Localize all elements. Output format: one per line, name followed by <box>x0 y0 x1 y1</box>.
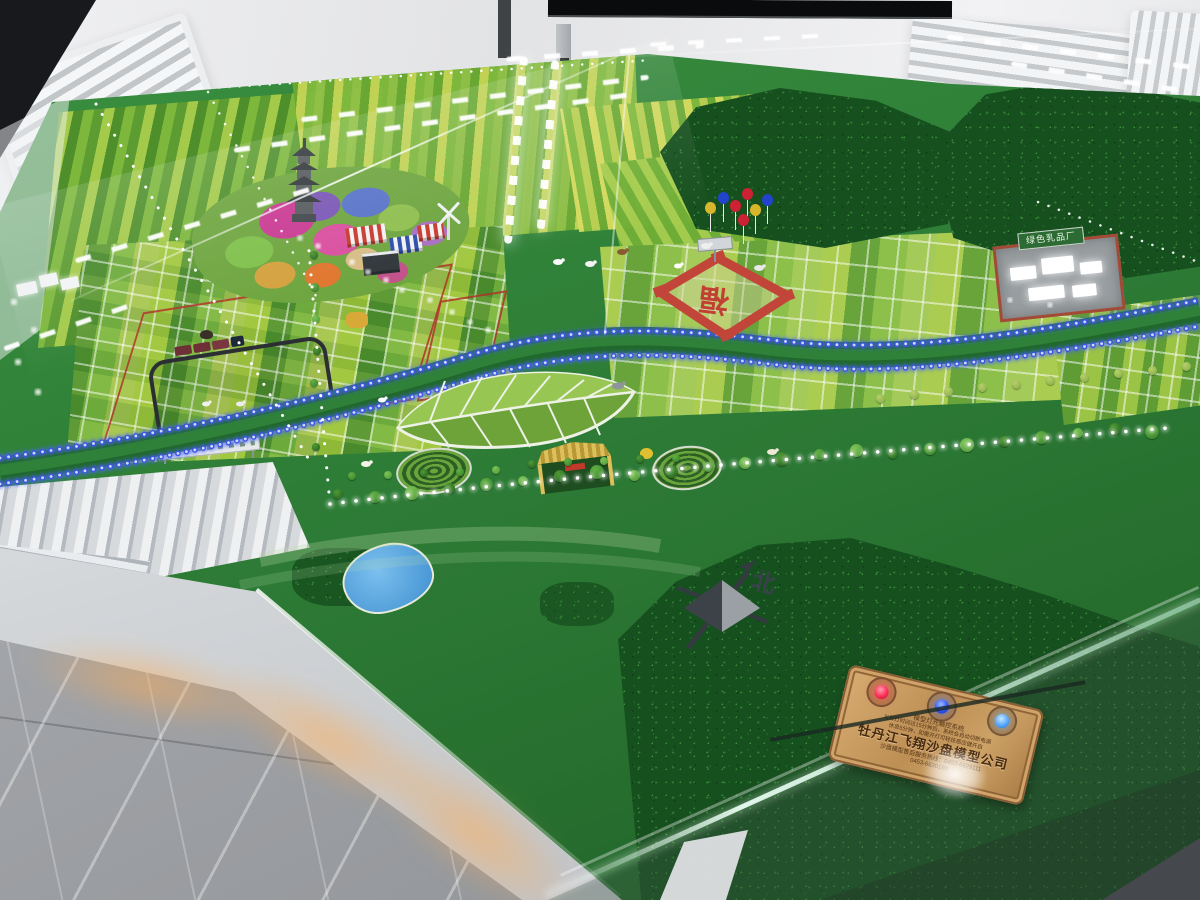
showroom-photo: 绿色乳品厂 <box>0 0 1200 900</box>
mowed-band <box>240 557 700 585</box>
fortune-square-garden: 福 <box>653 237 796 342</box>
compass-north-label: 北 <box>748 567 778 599</box>
wall-screen <box>548 0 952 19</box>
red-lamp <box>873 684 890 701</box>
screen-edge <box>498 0 511 58</box>
light-blue-lamp <box>994 713 1011 730</box>
fortune-character: 福 <box>697 281 732 318</box>
